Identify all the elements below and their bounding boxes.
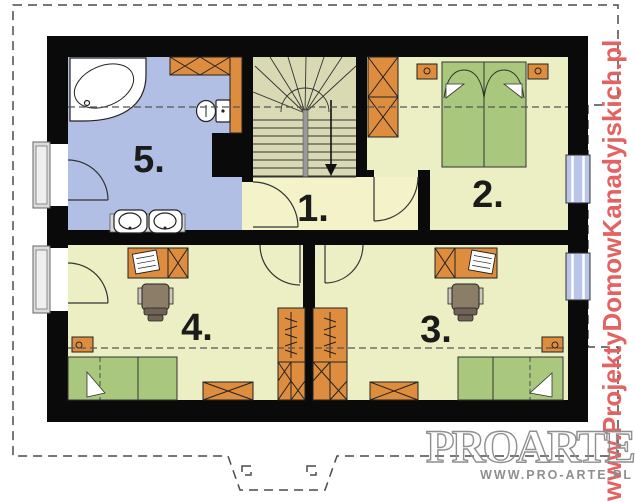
paper-sheet [468, 250, 495, 274]
nightstand [528, 64, 548, 79]
paper-sheet [132, 250, 159, 274]
bed [68, 357, 177, 400]
nightstand [417, 64, 437, 79]
window-right-bedroom-3 [566, 253, 590, 300]
bed [458, 357, 563, 400]
room-label-bedroom-bottom-right: 3. [420, 309, 452, 351]
porch-post [307, 466, 316, 475]
room-label-bathroom: 5. [133, 139, 165, 181]
storage-chest [370, 382, 418, 400]
hallway-floor [253, 177, 418, 230]
porch-post [242, 466, 251, 475]
nightstand [72, 337, 93, 352]
wardrobe [368, 57, 398, 137]
nightstand [542, 337, 563, 352]
room-label-bedroom-bottom-left: 4. [181, 307, 213, 349]
desk [435, 248, 497, 278]
chimney-shaft [212, 133, 253, 177]
wardrobe-with-hangers [313, 308, 347, 400]
pro-arte-logo: PROARTE WWW.PRO-ARTE.PL [426, 421, 634, 482]
room-label-hallway: 1. [297, 188, 329, 230]
floor-plan-page: 1. 2. 3. 4. 5. www.ProjektyDomowKanadyjs… [0, 0, 635, 502]
desk [128, 248, 188, 278]
room-label-bedroom-right: 2. [472, 174, 504, 216]
storage-chest [203, 382, 253, 400]
floor-plan-drawing: 1. 2. 3. 4. 5. www.ProjektyDomowKanadyjs… [0, 0, 635, 502]
toilet [197, 100, 231, 122]
window-right-bedroom-2 [566, 155, 590, 203]
stair-handrail [303, 110, 308, 177]
logo-text: PROARTE [426, 421, 634, 473]
double-bed [442, 62, 526, 167]
wardrobe-with-hangers [278, 308, 305, 400]
logo-url: WWW.PRO-ARTE.PL [480, 468, 633, 482]
